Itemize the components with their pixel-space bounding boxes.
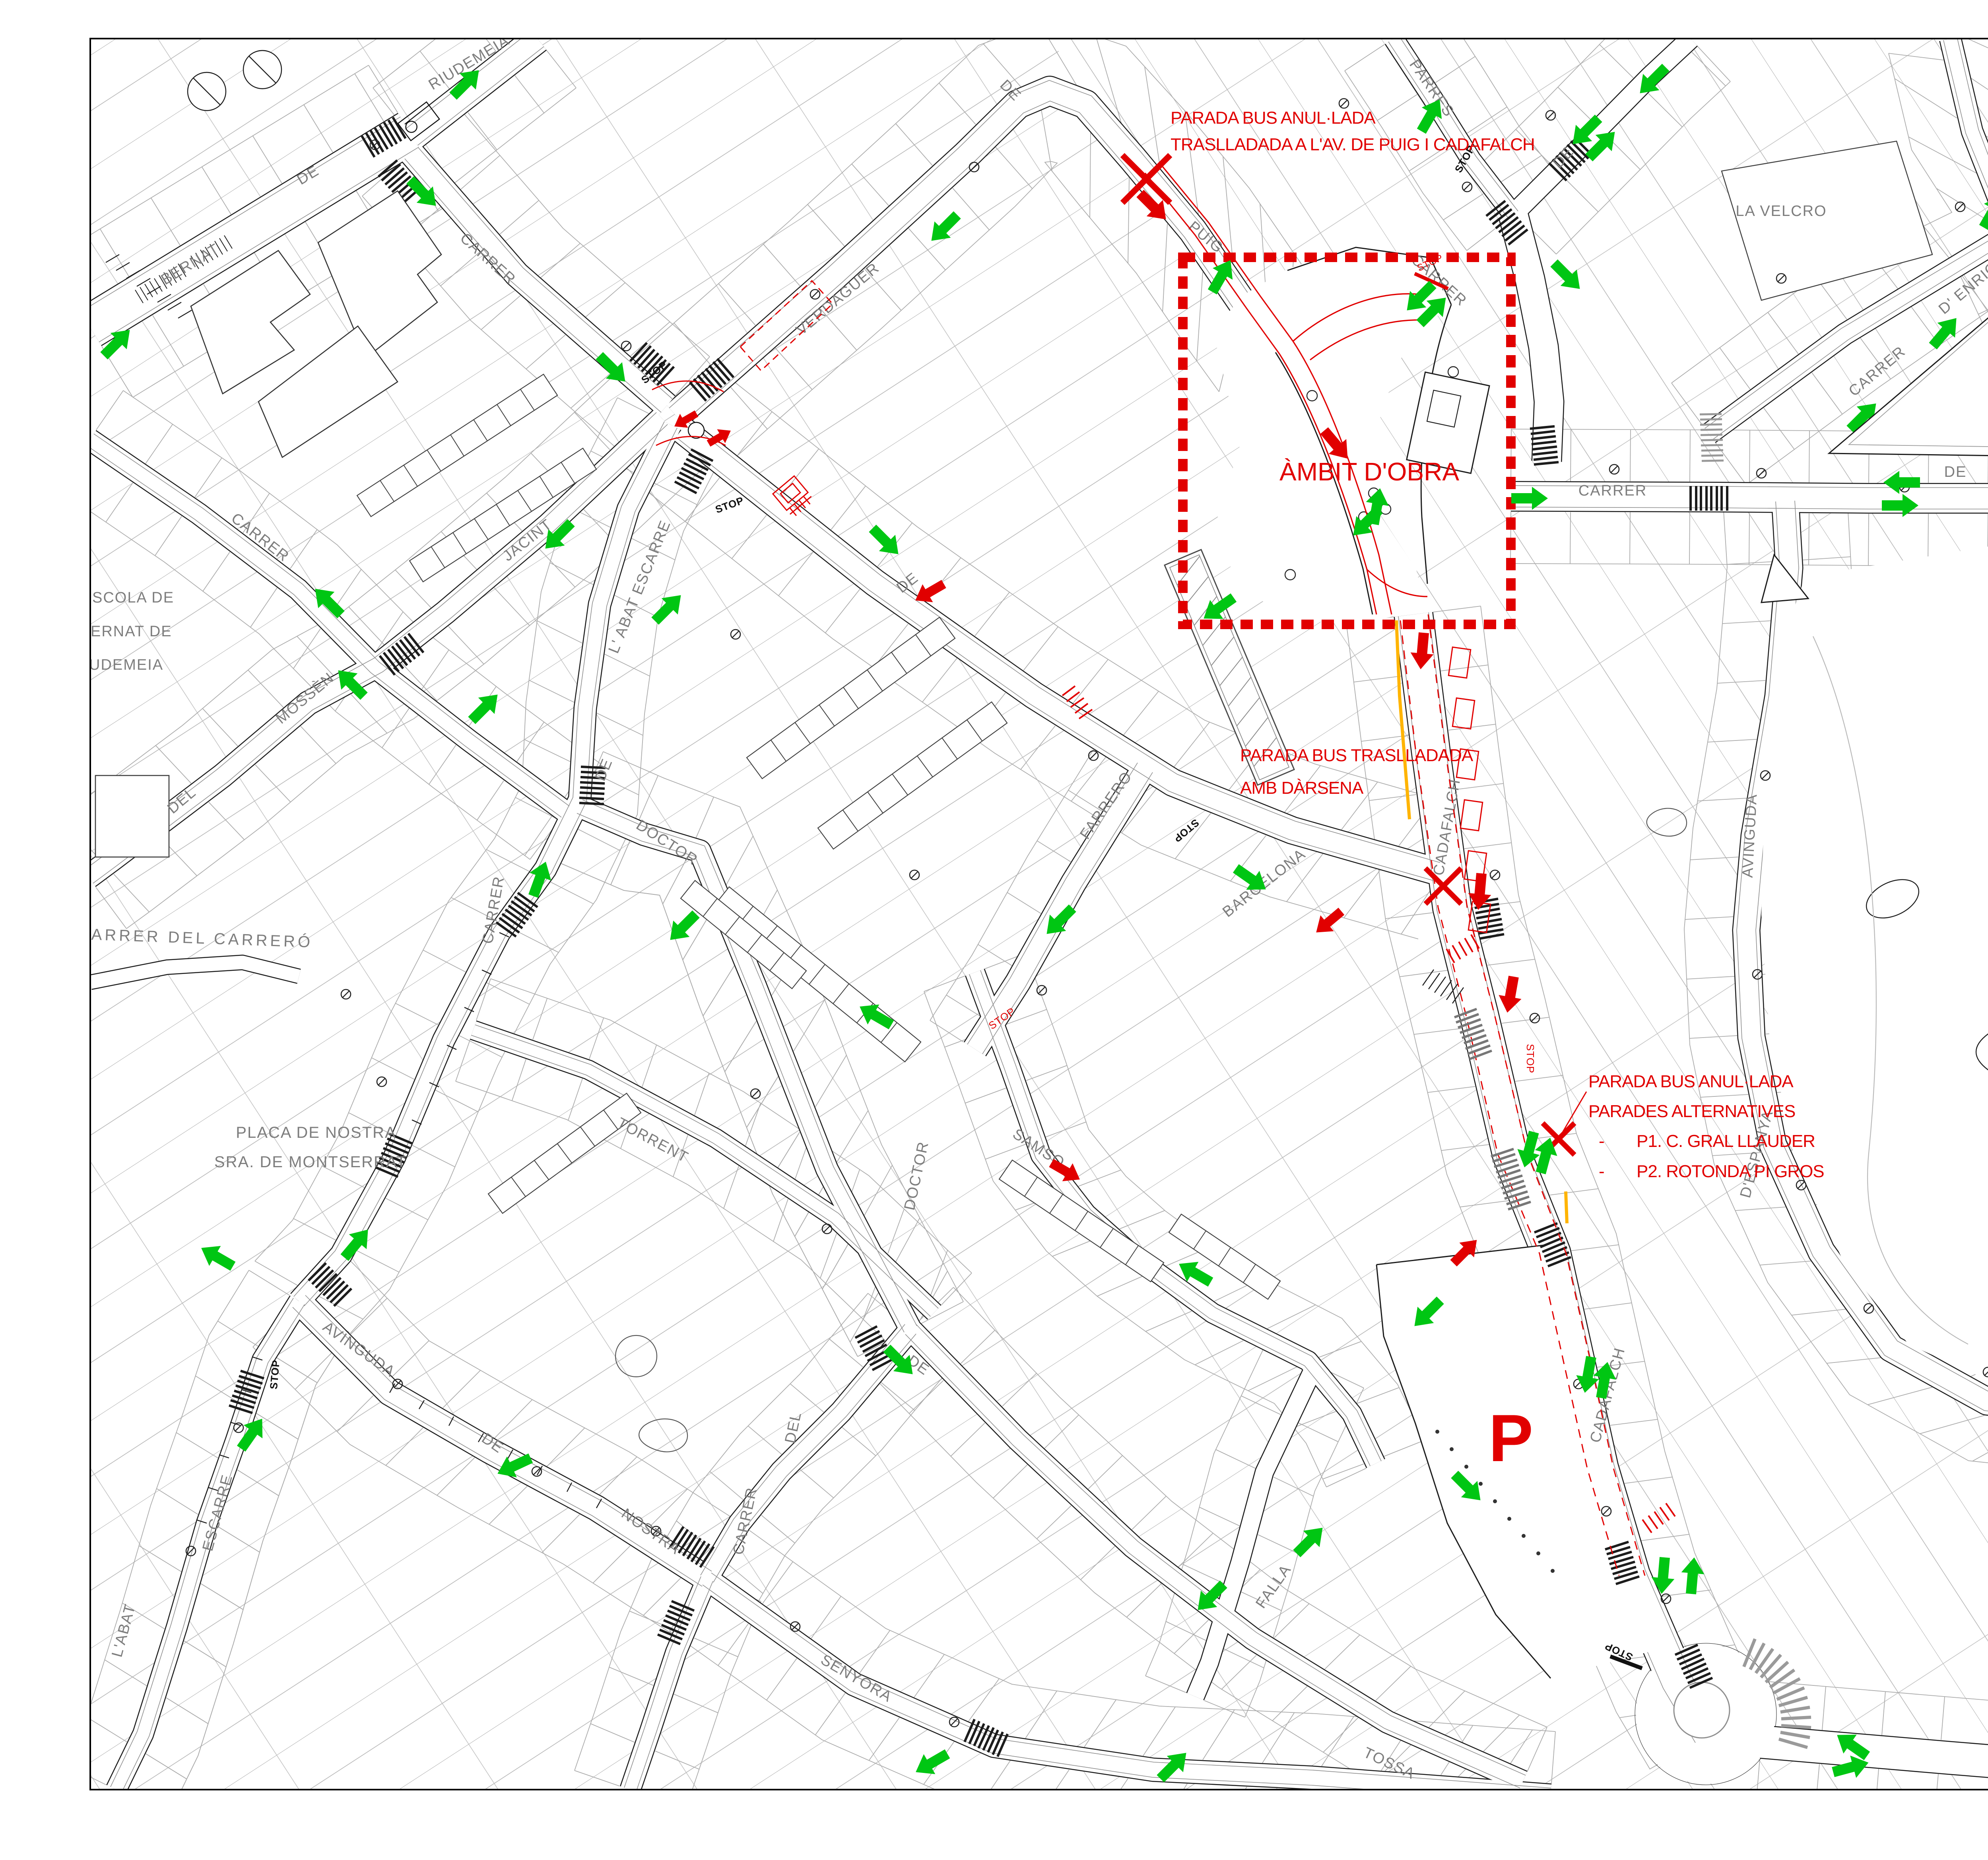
svg-text:SCOLA DE: SCOLA DE bbox=[92, 589, 174, 606]
svg-text:CARRER: CARRER bbox=[1578, 482, 1647, 499]
svg-text:LA VELCRO: LA VELCRO bbox=[1736, 203, 1827, 220]
svg-text:-: - bbox=[1599, 1162, 1604, 1181]
svg-text:UDEMEIA: UDEMEIA bbox=[89, 657, 163, 673]
svg-text:ERNAT DE: ERNAT DE bbox=[91, 623, 172, 640]
svg-text:PARADES ALTERNATIVES: PARADES ALTERNATIVES bbox=[1588, 1102, 1795, 1121]
svg-text:ÀMBIT D'OBRA: ÀMBIT D'OBRA bbox=[1279, 457, 1459, 486]
svg-text:DE: DE bbox=[1944, 464, 1967, 480]
svg-text:PARADA BUS TRASLLADADA: PARADA BUS TRASLLADADA bbox=[1240, 746, 1474, 765]
svg-text:STOP: STOP bbox=[1524, 1044, 1536, 1073]
svg-text:PLACA DE NOSTRA: PLACA DE NOSTRA bbox=[236, 1124, 396, 1141]
svg-text:P: P bbox=[1489, 1401, 1533, 1475]
svg-text:PARADA BUS ANUL·LADA: PARADA BUS ANUL·LADA bbox=[1171, 108, 1376, 128]
svg-text:PARADA BUS ANUL·LADA: PARADA BUS ANUL·LADA bbox=[1588, 1072, 1794, 1091]
svg-text:AMB DÀRSENA: AMB DÀRSENA bbox=[1240, 778, 1364, 798]
svg-text:SRA. DE MONTSERRAT: SRA. DE MONTSERRAT bbox=[214, 1153, 407, 1171]
svg-text:TRASLLADADA A L'AV. DE PUIG I: TRASLLADADA A L'AV. DE PUIG I CADAFALCH bbox=[1171, 135, 1535, 154]
svg-text:P2. ROTONDA PI GROS: P2. ROTONDA PI GROS bbox=[1637, 1162, 1824, 1181]
svg-text:-: - bbox=[1599, 1131, 1604, 1151]
svg-text:P1. C. GRAL LLAUDER: P1. C. GRAL LLAUDER bbox=[1637, 1131, 1815, 1151]
